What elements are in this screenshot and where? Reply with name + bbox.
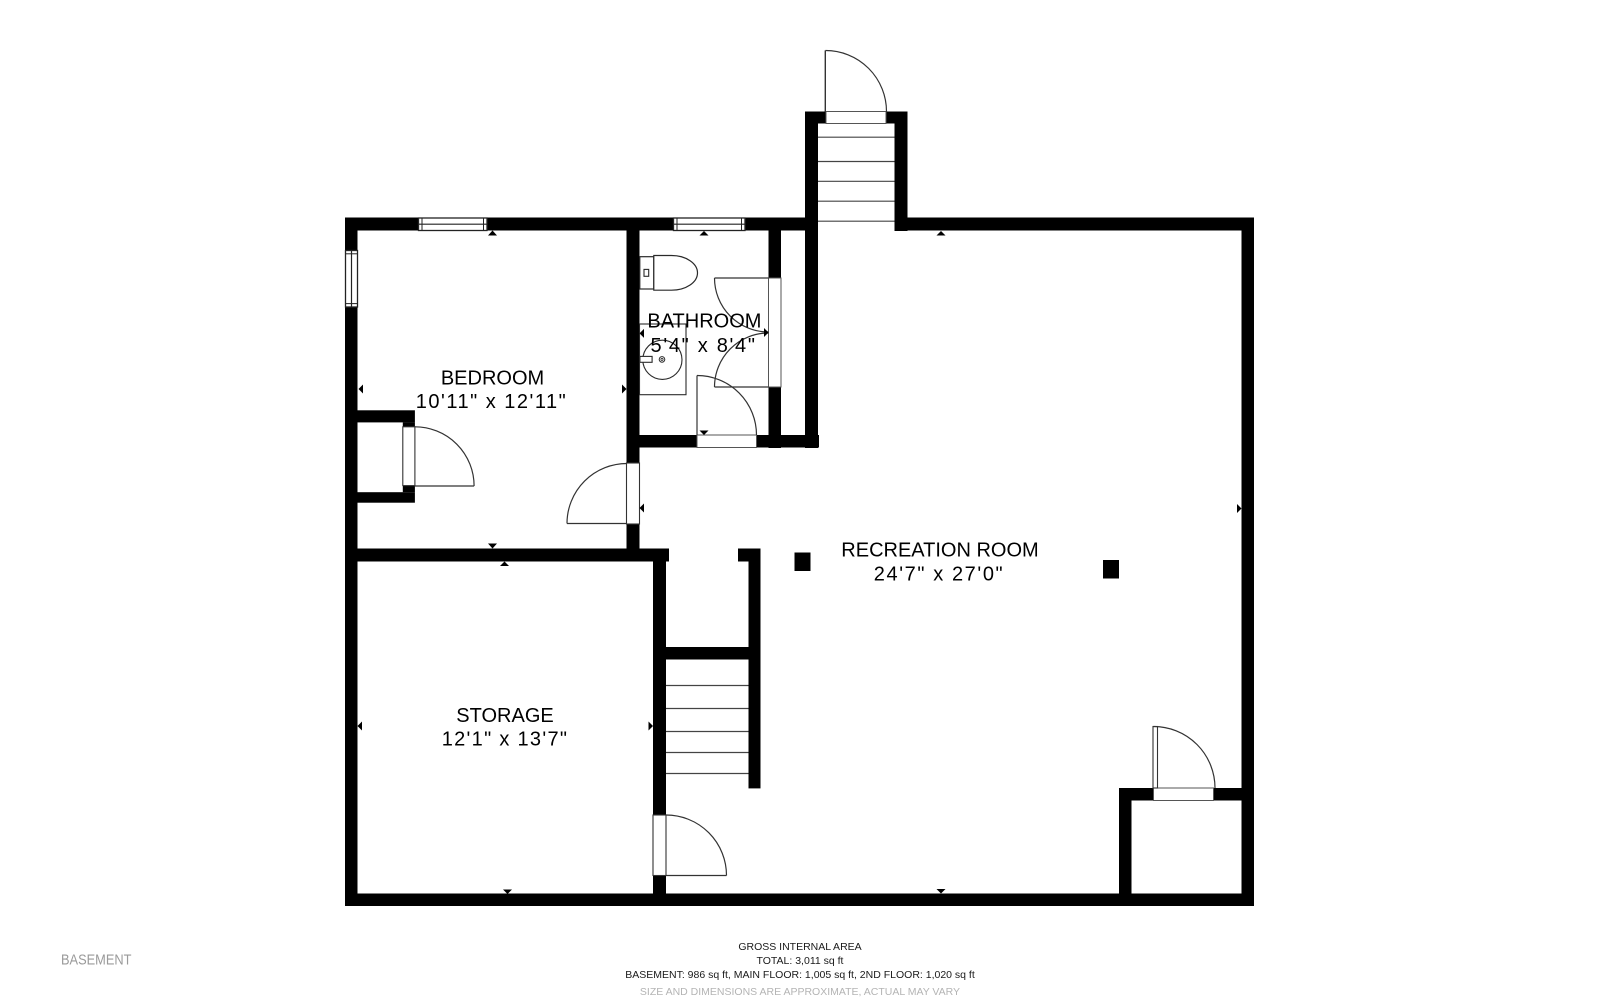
- svg-text:10'11" x 12'11": 10'11" x 12'11": [416, 391, 567, 413]
- svg-text:BATHROOM: BATHROOM: [647, 310, 761, 332]
- svg-text:BASEMENT: 986 sq ft, MAIN FLOO: BASEMENT: 986 sq ft, MAIN FLOOR: 1,005 s…: [625, 969, 975, 981]
- svg-text:24'7" x 27'0": 24'7" x 27'0": [874, 563, 1005, 585]
- svg-text:5'4" x 8'4": 5'4" x 8'4": [651, 335, 757, 357]
- svg-text:RECREATION ROOM: RECREATION ROOM: [841, 540, 1038, 562]
- svg-text:BASEMENT: BASEMENT: [61, 951, 132, 968]
- svg-text:SIZE AND DIMENSIONS ARE APPROX: SIZE AND DIMENSIONS ARE APPROXIMATE, ACT…: [640, 986, 960, 998]
- svg-text:BEDROOM: BEDROOM: [441, 368, 544, 390]
- svg-text:GROSS INTERNAL AREA: GROSS INTERNAL AREA: [738, 941, 861, 953]
- svg-text:12'1" x 13'7": 12'1" x 13'7": [442, 729, 569, 751]
- svg-text:STORAGE: STORAGE: [456, 705, 553, 727]
- svg-text:TOTAL: 3,011 sq ft: TOTAL: 3,011 sq ft: [757, 955, 844, 967]
